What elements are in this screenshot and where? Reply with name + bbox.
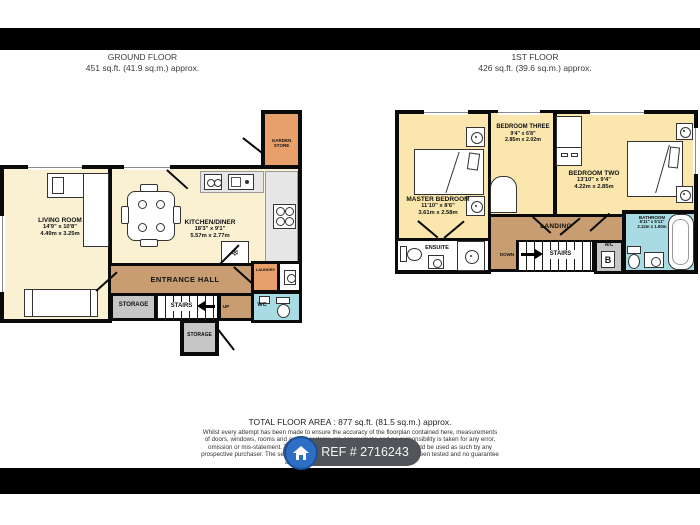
kitchen-dims-imperial: 18'3" x 9'1": [160, 226, 260, 233]
basin-bowl: [287, 274, 296, 283]
ground-floor-header: GROUND FLOOR 451 sq.ft. (41.9 sq.m.) app…: [20, 52, 265, 74]
wc-label: WC: [254, 302, 270, 308]
down-label: DOWN: [496, 252, 518, 257]
bedroom-three-name: BEDROOM THREE: [478, 124, 568, 131]
hob-icon: [273, 204, 296, 229]
place-setting: [138, 200, 147, 209]
nightstand: [676, 186, 693, 203]
window-glass-line: [498, 112, 540, 113]
bedroom-two-name: BEDROOM TWO: [548, 170, 640, 177]
hob-ring: [276, 207, 285, 216]
drawer-handle: [571, 153, 578, 157]
ground-stairs-label: STAIRS: [166, 302, 197, 311]
window-glass-line: [424, 112, 468, 113]
glass-rack-icon: [204, 174, 222, 190]
drawer-handle: [561, 153, 568, 157]
total-floor-area: TOTAL FLOOR AREA : 877 sq.ft. (81.5 sq.m…: [150, 417, 550, 427]
window-glass-line: [590, 112, 644, 113]
top-divider-bar: [0, 28, 700, 50]
room-laundry: [251, 261, 280, 293]
shower-head: [465, 250, 479, 264]
storage-bottom-label: STORAGE: [181, 333, 218, 339]
lamp-dot: [683, 193, 685, 195]
hob-ring: [285, 217, 294, 226]
master-name: MASTER BEDROOM: [392, 196, 484, 203]
ground-floor-title: GROUND FLOOR: [20, 52, 265, 63]
toilet-cistern: [276, 297, 290, 304]
lamp-dot: [475, 136, 477, 138]
master-dims-metric: 3.61m x 2.58m: [392, 210, 484, 217]
master-bedroom-label: MASTER BEDROOM 11'10" x 8'6" 3.61m x 2.5…: [392, 196, 484, 217]
storage-door: [216, 327, 234, 350]
first-floor-header: 1ST FLOOR 426 sq.ft. (39.6 sq.m.) approx…: [410, 52, 660, 74]
sink-tap: [245, 180, 249, 184]
stairs-down-arrow-shaft: [521, 253, 535, 256]
ensuite-label: ENSUITE: [420, 245, 454, 251]
kitchen-dims-metric: 5.57m x 2.77m: [160, 233, 260, 240]
bathroom-dims-metric: 2.12m x 1.80m: [626, 225, 678, 230]
up-label: UP: [219, 304, 233, 309]
shower-dot: [470, 255, 472, 257]
ensuite-sink: [428, 255, 444, 269]
window-glass-line: [124, 167, 170, 168]
sofa-arm: [32, 289, 33, 317]
window-glass-line: [695, 128, 696, 174]
glass-icon: [214, 179, 222, 187]
lamp-dot: [683, 130, 685, 132]
storage-left-label: STORAGE: [112, 302, 155, 309]
place-setting: [138, 223, 147, 232]
bathroom-label: BATHROOM 6'11" x 5'11" 2.12m x 1.80m: [626, 215, 678, 230]
bottom-divider-bar: [0, 468, 700, 494]
lamp-icon: [680, 190, 691, 201]
bathroom-toilet-bowl: [628, 254, 640, 269]
kitchen-sink-icon: [228, 174, 254, 190]
bedroom-three-dims-metric: 2.85m x 2.02m: [478, 137, 568, 143]
landing-label: LANDING: [520, 223, 592, 230]
shower: [457, 241, 485, 271]
dining-chair: [140, 184, 158, 192]
toilet-bowl: [277, 304, 290, 318]
stairs-up-arrow-shaft: [204, 305, 215, 308]
living-room-label: LIVING ROOM 14'9" x 10'8" 4.49m x 3.25m: [10, 217, 110, 238]
garden-store-label: GARDEN STORE: [265, 138, 298, 148]
lamp-icon: [680, 127, 691, 138]
dining-chair: [140, 239, 158, 247]
boiler-icon: B: [601, 251, 615, 268]
first-floor-title: 1ST FLOOR: [410, 52, 660, 63]
sofa: [24, 289, 98, 317]
living-room-dims-imperial: 14'9" x 10'8": [10, 224, 110, 231]
master-dims-imperial: 11'10" x 8'6": [392, 203, 484, 210]
sink-bowl: [231, 177, 241, 187]
laundry-label: LAUNDRY: [252, 268, 279, 273]
room-utility: [277, 261, 302, 293]
hob-ring: [285, 207, 294, 216]
metropix-logo: [284, 436, 318, 470]
sink-bowl: [433, 259, 442, 268]
stairs-down-arrow: [535, 249, 543, 259]
house-icon: [292, 445, 310, 461]
bedroom-two-label: BEDROOM TWO 13'10" x 9'4" 4.22m x 2.85m: [548, 170, 640, 191]
window-glass-line: [28, 167, 82, 168]
place-setting: [156, 200, 165, 209]
ensuite-toilet-cistern: [400, 246, 407, 262]
bathroom-toilet-cistern: [627, 246, 641, 254]
first-floor-area: 426 sq.ft. (39.6 sq.m.) approx.: [410, 63, 660, 74]
first-stairs-label: STAIRS: [545, 250, 576, 259]
kitchen-label: KITCHEN/DINER 18'3" x 9'1" 5.57m x 2.77m: [160, 219, 260, 240]
disclaimer-line: Whilst every attempt has been made to en…: [95, 429, 605, 436]
living-room-name: LIVING ROOM: [10, 217, 110, 224]
dining-chair: [121, 206, 129, 224]
ground-floor-area: 451 sq.ft. (41.9 sq.m.) approx.: [20, 63, 265, 74]
sofa-arm: [90, 289, 91, 317]
kitchen-name: KITCHEN/DINER: [160, 219, 260, 226]
hob-ring: [276, 217, 285, 226]
bedroom-three-label: BEDROOM THREE 9'4" x 6'8" 2.85m x 2.02m: [478, 124, 568, 143]
nightstand: [676, 123, 693, 140]
basin-icon: [284, 270, 296, 285]
single-bed: [490, 176, 517, 213]
bathroom-sink: [644, 252, 664, 268]
sofa-cushion: [52, 177, 64, 194]
entrance-hall-label: ENTRANCE HALL: [120, 276, 250, 285]
sink-bowl: [651, 257, 661, 267]
window-glass-line: [2, 216, 3, 292]
wardrobe-shelf: [557, 147, 581, 148]
ac-label: A/C: [596, 243, 622, 249]
living-room-dims-metric: 4.49m x 3.25m: [10, 231, 110, 238]
bedroom-two-dims-imperial: 13'10" x 9'4": [548, 177, 640, 184]
floorplan-page: GROUND FLOOR 451 sq.ft. (41.9 sq.m.) app…: [0, 0, 700, 525]
pillow: [467, 152, 480, 170]
bedroom-two-dims-metric: 4.22m x 2.85m: [548, 184, 640, 191]
room-garden-store: GARDEN STORE: [261, 110, 302, 170]
